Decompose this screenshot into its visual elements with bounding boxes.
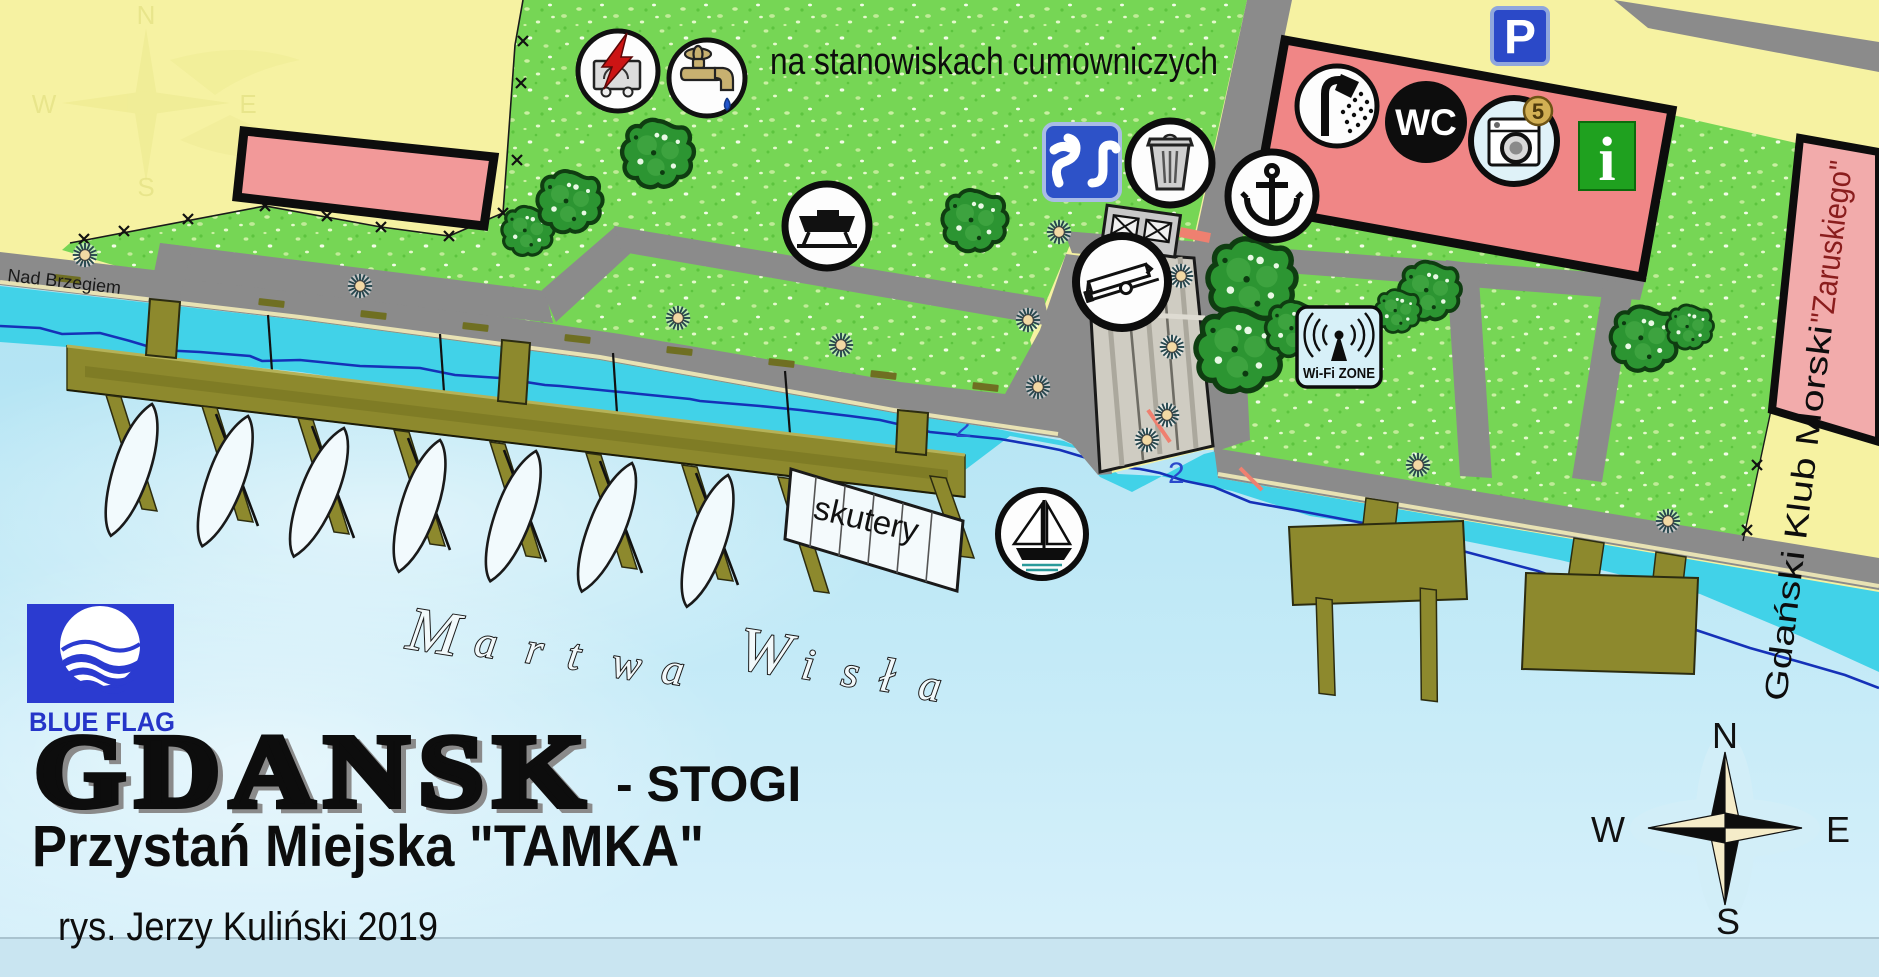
svg-text:rys. Jerzy Kuliński 2019: rys. Jerzy Kuliński 2019 [58,905,438,949]
svg-text:GDANSK: GDANSK [34,714,594,829]
svg-text:E: E [239,89,256,119]
svg-text:2: 2 [1168,457,1185,490]
svg-text:E: E [1826,809,1850,850]
svg-text:Wi-Fi ZONE: Wi-Fi ZONE [1303,365,1375,382]
svg-text:N: N [1712,715,1738,756]
svg-text:Przystań Miejska "TAMKA": Przystań Miejska "TAMKA" [32,814,704,879]
svg-text:N: N [137,0,156,30]
svg-text:na stanowiskach cumowniczych: na stanowiskach cumowniczych [770,41,1218,83]
svg-text:P: P [1504,11,1536,64]
svg-text:W: W [32,89,57,119]
svg-text:5: 5 [1532,99,1544,124]
svg-text:S: S [137,172,154,202]
svg-text:W: W [1591,809,1625,850]
svg-text:WC: WC [1395,102,1457,143]
svg-text:i: i [1598,126,1615,194]
svg-text:S: S [1716,901,1740,942]
svg-text:- STOGI: - STOGI [616,756,801,812]
